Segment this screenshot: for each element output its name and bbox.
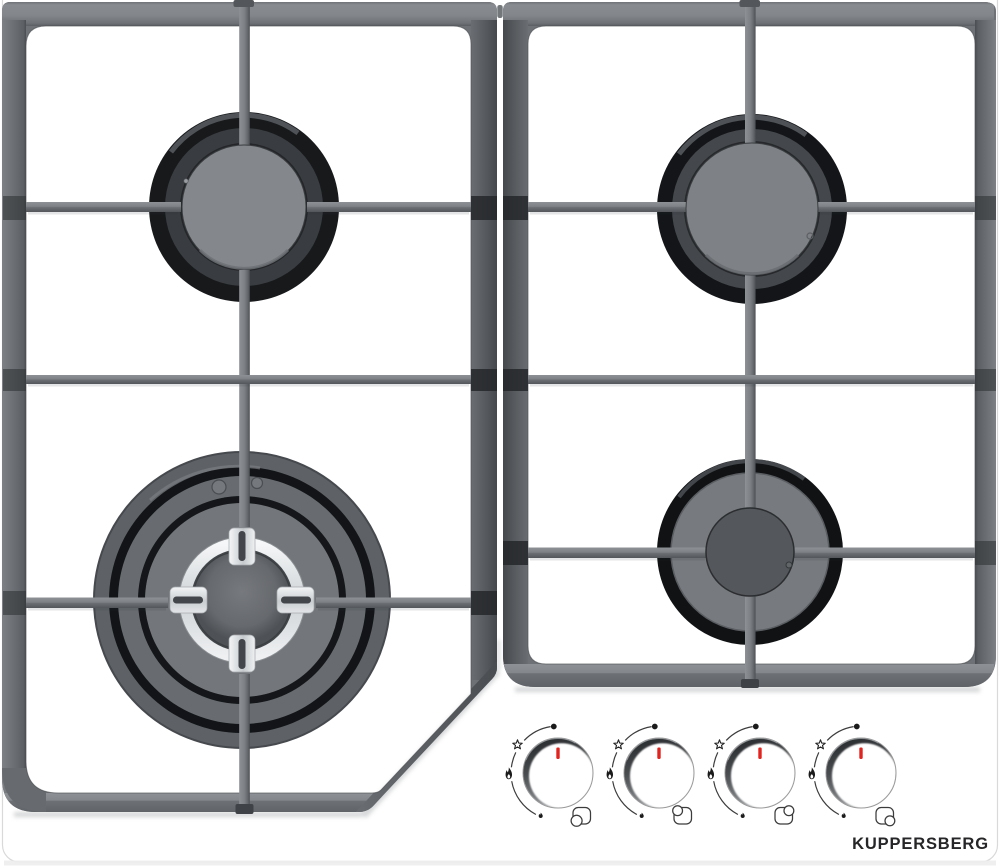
svg-text:KUPPERSBERG: KUPPERSBERG <box>852 835 989 853</box>
